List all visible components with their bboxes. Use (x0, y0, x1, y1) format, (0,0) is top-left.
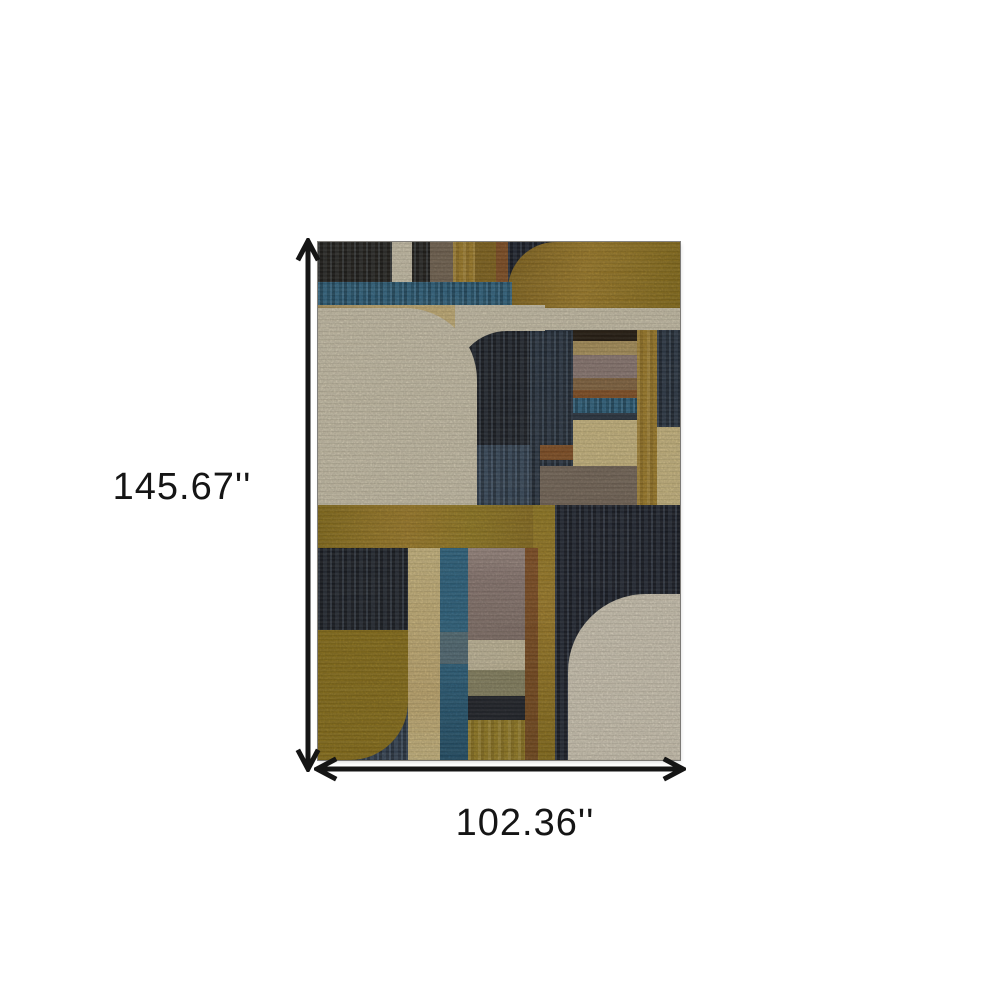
rug-block (453, 242, 475, 286)
rug-block (540, 466, 637, 505)
rug-block (408, 548, 440, 760)
rug-block (468, 640, 525, 670)
rug-block (545, 308, 680, 330)
rug-block (573, 390, 637, 398)
height-dimension-arrow double-headed-arrow-vertical-icon (295, 238, 321, 772)
rug-block (573, 341, 637, 355)
rug-block-teal-band (318, 282, 512, 306)
rug-block (573, 420, 637, 470)
product-dimension-figure: 145.67'' 102.36'' (0, 0, 1000, 1000)
rug-block (573, 378, 637, 390)
rug-block-cream-arch (318, 308, 477, 505)
rug-block (430, 242, 453, 286)
rug-block-gold-top (508, 242, 680, 308)
rug-block (657, 330, 680, 427)
rug-block (468, 720, 525, 760)
width-dimension-label: 102.36'' (375, 800, 675, 846)
rug-block (573, 398, 637, 413)
rug-image (318, 242, 680, 760)
rug-block (540, 445, 573, 460)
rug-block (440, 632, 468, 664)
rug-block (525, 548, 538, 760)
width-dimension-arrow double-headed-arrow-horizontal-icon (314, 756, 686, 782)
rug-block (475, 242, 496, 286)
rug-block (573, 330, 637, 341)
rug-block (318, 548, 408, 630)
rug-block (468, 670, 525, 696)
rug-block (657, 427, 680, 505)
rug-block (392, 242, 412, 282)
rug-block (637, 330, 657, 505)
height-dimension-label: 145.67'' (72, 464, 292, 510)
rug-block (573, 355, 637, 378)
rug-block (573, 413, 637, 420)
